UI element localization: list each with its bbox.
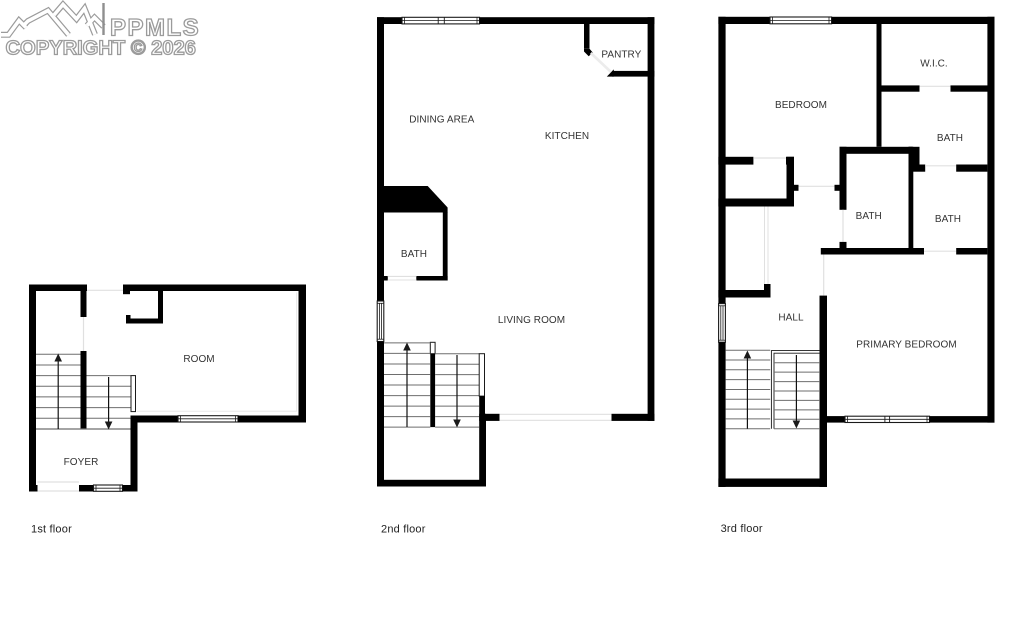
svg-text:HALL: HALL [778, 313, 804, 324]
svg-text:PANTRY: PANTRY [601, 49, 641, 60]
svg-text:BATH: BATH [856, 211, 882, 222]
svg-text:3rd floor: 3rd floor [721, 523, 763, 535]
svg-text:KITCHEN: KITCHEN [545, 131, 589, 142]
svg-text:2nd floor: 2nd floor [381, 524, 426, 536]
svg-text:DINING AREA: DINING AREA [409, 115, 474, 126]
svg-text:BATH: BATH [401, 249, 427, 260]
svg-text:1st floor: 1st floor [31, 524, 72, 536]
svg-text:W.I.C.: W.I.C. [920, 59, 948, 70]
svg-text:COPYRIGHT © 2026: COPYRIGHT © 2026 [6, 38, 196, 60]
svg-text:BATH: BATH [935, 214, 961, 225]
svg-text:LIVING ROOM: LIVING ROOM [498, 315, 565, 326]
svg-text:ROOM: ROOM [183, 354, 214, 365]
svg-text:FOYER: FOYER [64, 457, 99, 468]
svg-text:BEDROOM: BEDROOM [775, 100, 827, 111]
svg-text:BATH: BATH [937, 133, 963, 144]
svg-text:PRIMARY BEDROOM: PRIMARY BEDROOM [856, 339, 956, 350]
